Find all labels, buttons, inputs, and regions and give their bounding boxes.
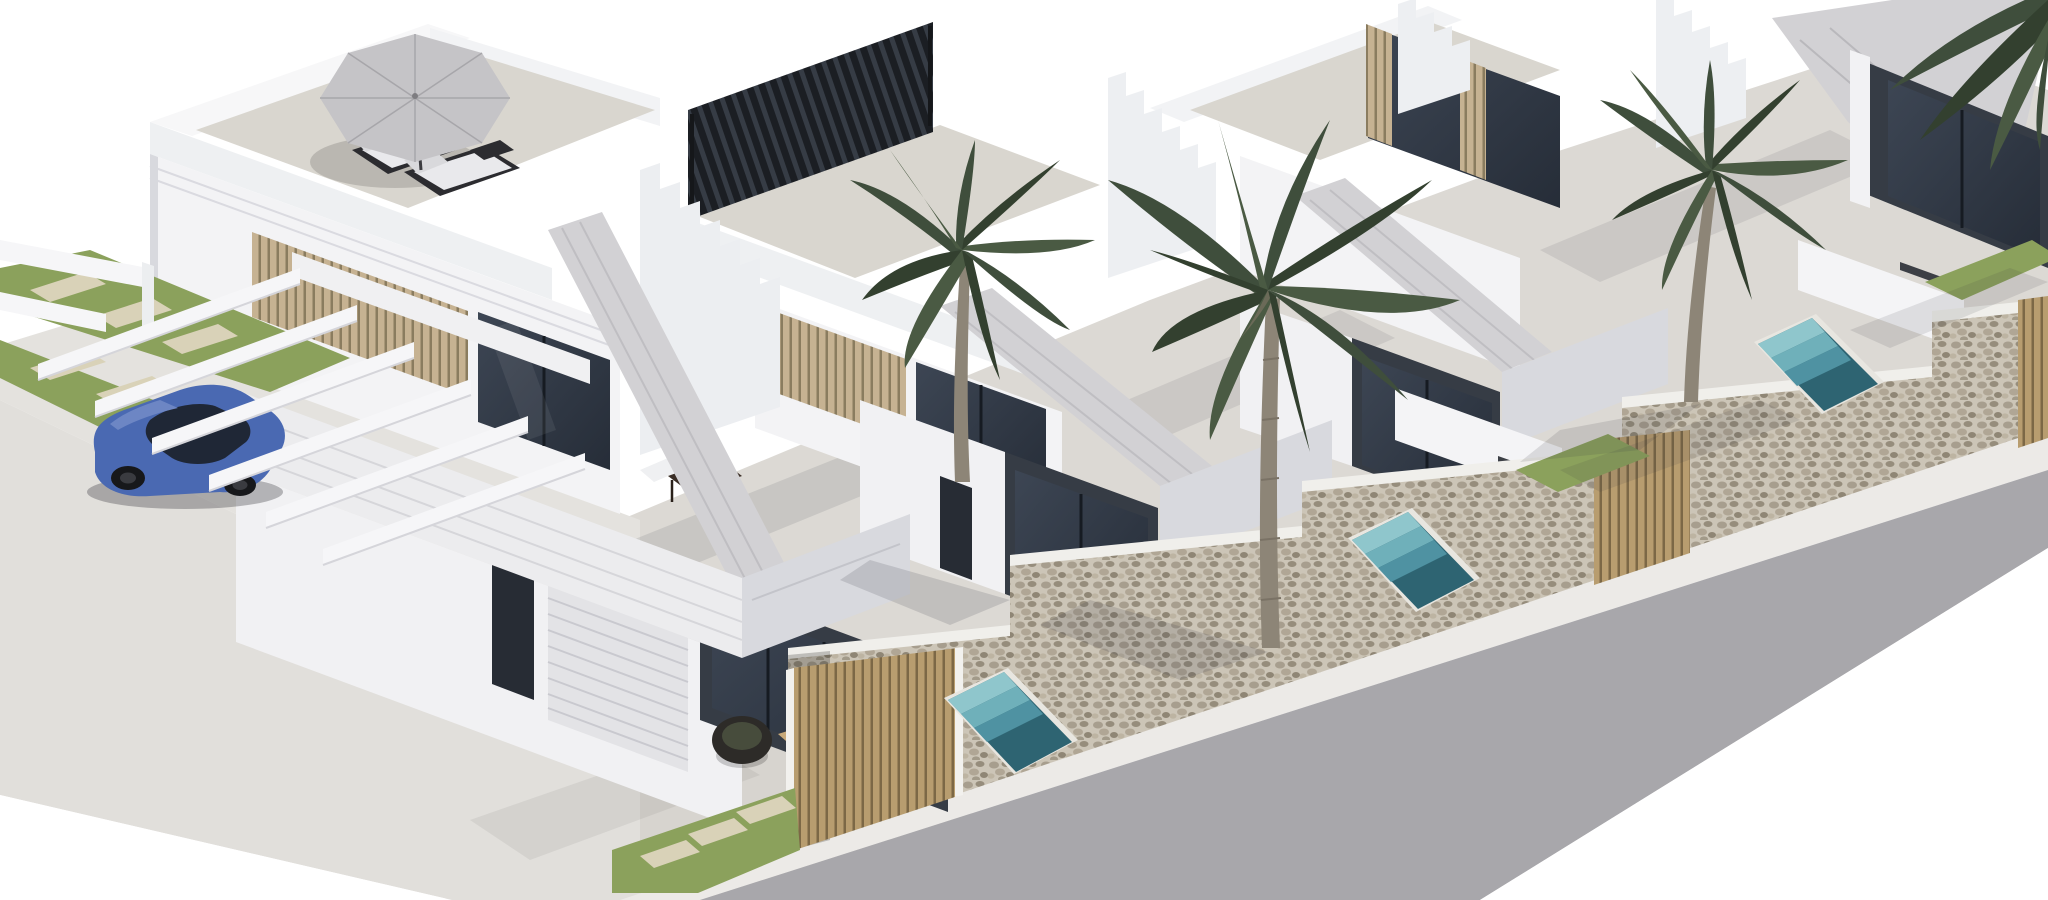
architectural-render bbox=[0, 0, 2048, 900]
entry-door bbox=[492, 560, 534, 700]
entry-door bbox=[940, 476, 972, 580]
render-canvas bbox=[0, 0, 2048, 900]
white-column bbox=[1850, 50, 1870, 208]
slat-pilaster bbox=[1366, 24, 1392, 146]
wooden-gate-3 bbox=[2018, 296, 2048, 448]
gate-post bbox=[955, 647, 963, 797]
